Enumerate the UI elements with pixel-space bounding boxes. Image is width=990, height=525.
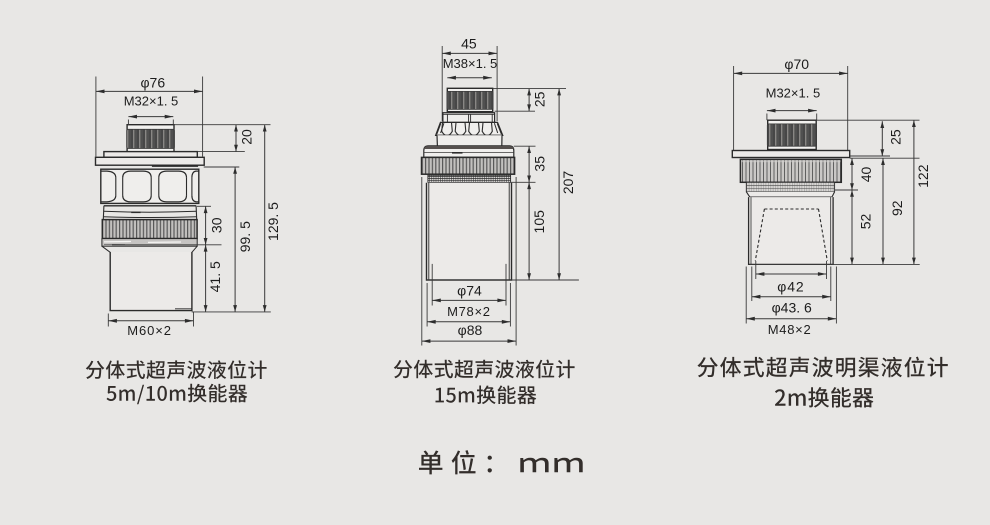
svg-text:45: 45 [461,36,477,52]
svg-text:99. 5: 99. 5 [237,221,253,252]
svg-text:92: 92 [889,200,905,216]
svg-text:M38×1. 5: M38×1. 5 [443,56,498,71]
svg-text:M32×1. 5: M32×1. 5 [124,93,179,108]
svg-text:φ42: φ42 [777,278,804,294]
svg-text:20: 20 [239,129,255,145]
svg-text:30: 30 [209,217,225,233]
svg-text:φ88: φ88 [458,322,483,338]
svg-text:207: 207 [560,171,576,195]
svg-text:25: 25 [532,91,548,107]
svg-text:M48×2: M48×2 [768,322,812,337]
svg-text:φ74: φ74 [457,283,482,299]
svg-text:φ43. 6: φ43. 6 [772,300,812,316]
svg-text:M32×1. 5: M32×1. 5 [766,86,821,101]
svg-text:M78×2: M78×2 [447,304,491,319]
svg-text:129. 5: 129. 5 [265,202,281,241]
svg-text:25: 25 [888,129,904,145]
svg-text:M60×2: M60×2 [127,323,172,338]
svg-text:41. 5: 41. 5 [207,261,223,292]
svg-text:52: 52 [858,214,874,230]
svg-text:122: 122 [915,164,931,188]
svg-text:40: 40 [858,167,874,183]
svg-text:35: 35 [532,156,548,172]
svg-text:φ70: φ70 [784,56,809,72]
svg-text:φ76: φ76 [140,75,165,91]
svg-text:105: 105 [531,210,547,234]
